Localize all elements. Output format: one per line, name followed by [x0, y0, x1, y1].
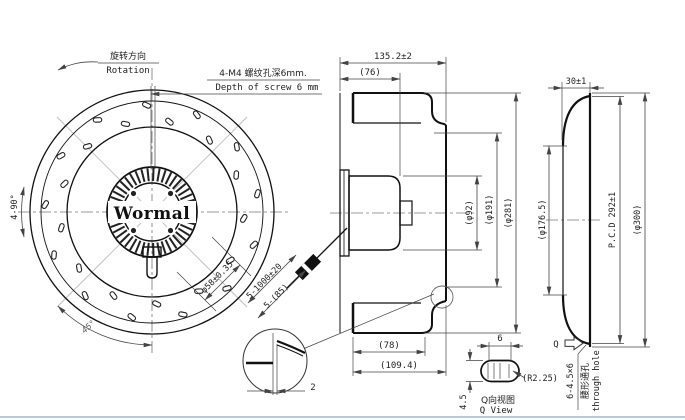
- pattern-angle-label: 4-90°: [10, 194, 20, 220]
- rotation-note-en: Rotation: [106, 66, 149, 76]
- section-view: 135.2±2 (76) (78) (109.4) (φ92) (φ191) (…: [243, 52, 521, 395]
- qview-title-en: Q View: [480, 406, 513, 416]
- dim-dia-inlet: (φ176.5): [538, 200, 548, 241]
- detail-marker-circle: [431, 286, 453, 308]
- fan-technical-drawing: Wormal 旋转方向 Rotation 4-M4 螺纹孔深6mm. Depth…: [0, 0, 685, 420]
- dim-plate-thickness: 2: [310, 383, 315, 393]
- dim-dia-300: (φ300): [633, 205, 643, 236]
- note-hole-type-cn: 腰形通孔: [579, 363, 591, 399]
- inlet-flare-bottom: [563, 295, 590, 344]
- rotation-arrow: [58, 62, 98, 70]
- detail-leader: [303, 294, 434, 349]
- dim-slot-pitch: 6: [497, 334, 502, 344]
- tap-note-en: Depth of screw 6 mm: [216, 83, 319, 93]
- dim-dia-outer: (φ281): [504, 198, 514, 229]
- detail-circle: [243, 329, 307, 393]
- front-view: Wormal 旋转方向 Rotation 4-M4 螺纹孔深6mm. Depth…: [10, 50, 322, 354]
- dim-slot-width: 4.5: [459, 394, 469, 409]
- angle-45-arc: [58, 306, 152, 345]
- dim-width-blade: (78): [378, 341, 400, 351]
- rotation-note-cn: 旋转方向: [110, 50, 146, 62]
- dim-corner-radius: (R2.25): [522, 374, 558, 384]
- angle-45-label: 45°: [80, 319, 98, 336]
- inlet-flare-top: [563, 96, 590, 146]
- q-view: 6 4.5 (R2.25) Q向视图 Q View: [459, 334, 558, 416]
- dim-flange-width: 30±1: [566, 77, 586, 87]
- slot-hatch-lines: [488, 363, 509, 379]
- qview-title-cn: Q向视图: [481, 394, 515, 406]
- detail-view: 2: [243, 294, 434, 395]
- q-view-arrow-icon: [565, 337, 583, 350]
- q-direction-label: Q: [553, 340, 558, 350]
- dim-dia-inner: (φ191): [485, 195, 495, 226]
- dim-depth-motor: (76): [359, 68, 381, 78]
- note-hole-type-en: through hole: [592, 350, 602, 411]
- logo-text: Wormal: [113, 204, 191, 224]
- dim-width-total: (109.4): [380, 361, 418, 371]
- tap-note-cn: 4-M4 螺纹孔深6mm.: [219, 67, 306, 79]
- dim-dia-motor: (φ92): [465, 200, 475, 226]
- drawing-canvas: Wormal 旋转方向 Rotation 4-M4 螺纹孔深6mm. Depth…: [0, 0, 685, 420]
- note-hole-spec: 6-4.5×6: [566, 363, 576, 399]
- side-view: 30±1 (φ176.5) P.C.D 292±1 (φ300) Q 6-4.5…: [538, 77, 650, 412]
- dim-depth-total: 135.2±2: [374, 52, 412, 62]
- cable-assembly: 5-1000±20 5-(85): [245, 228, 347, 318]
- bottom-shroud: [353, 301, 446, 333]
- top-shroud: [353, 93, 446, 125]
- dim-pcd: P.C.D 292±1: [608, 192, 618, 248]
